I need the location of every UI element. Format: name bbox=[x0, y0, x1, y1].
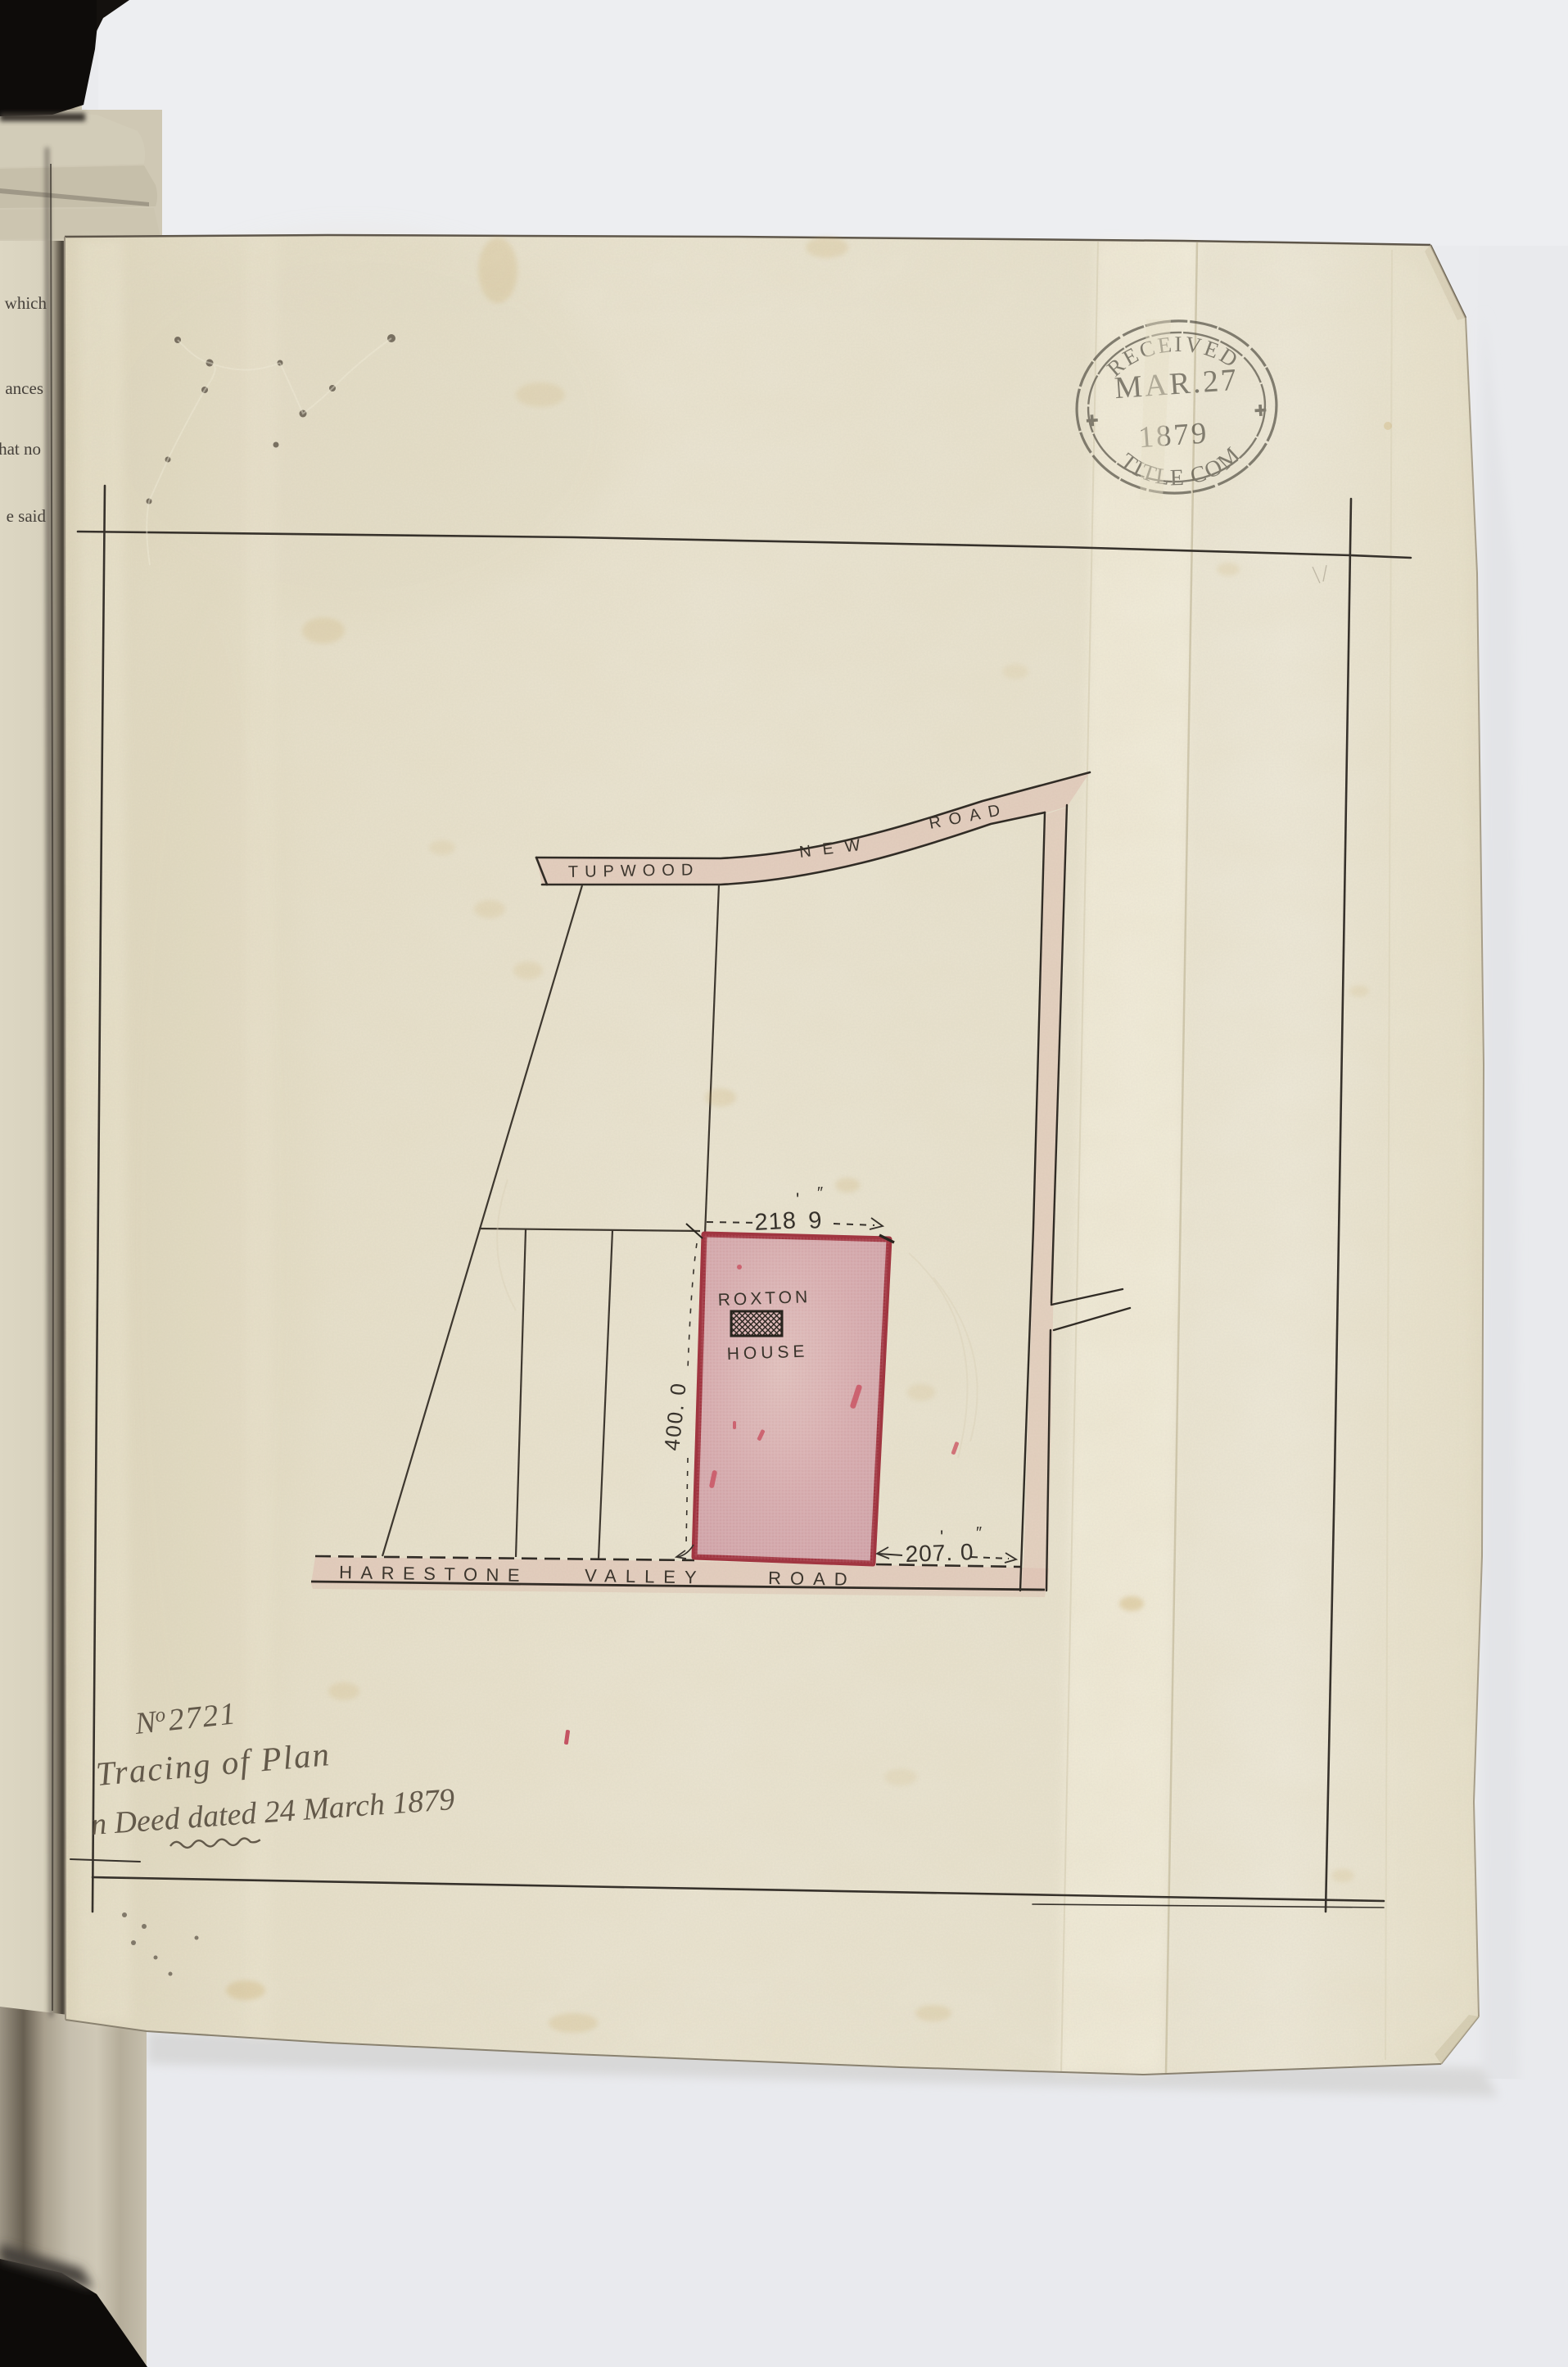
svg-text:e said: e said bbox=[7, 506, 47, 526]
svg-text:which: which bbox=[5, 293, 47, 313]
svg-text:ances: ances bbox=[5, 378, 43, 398]
svg-text:hat no: hat no bbox=[0, 439, 41, 459]
